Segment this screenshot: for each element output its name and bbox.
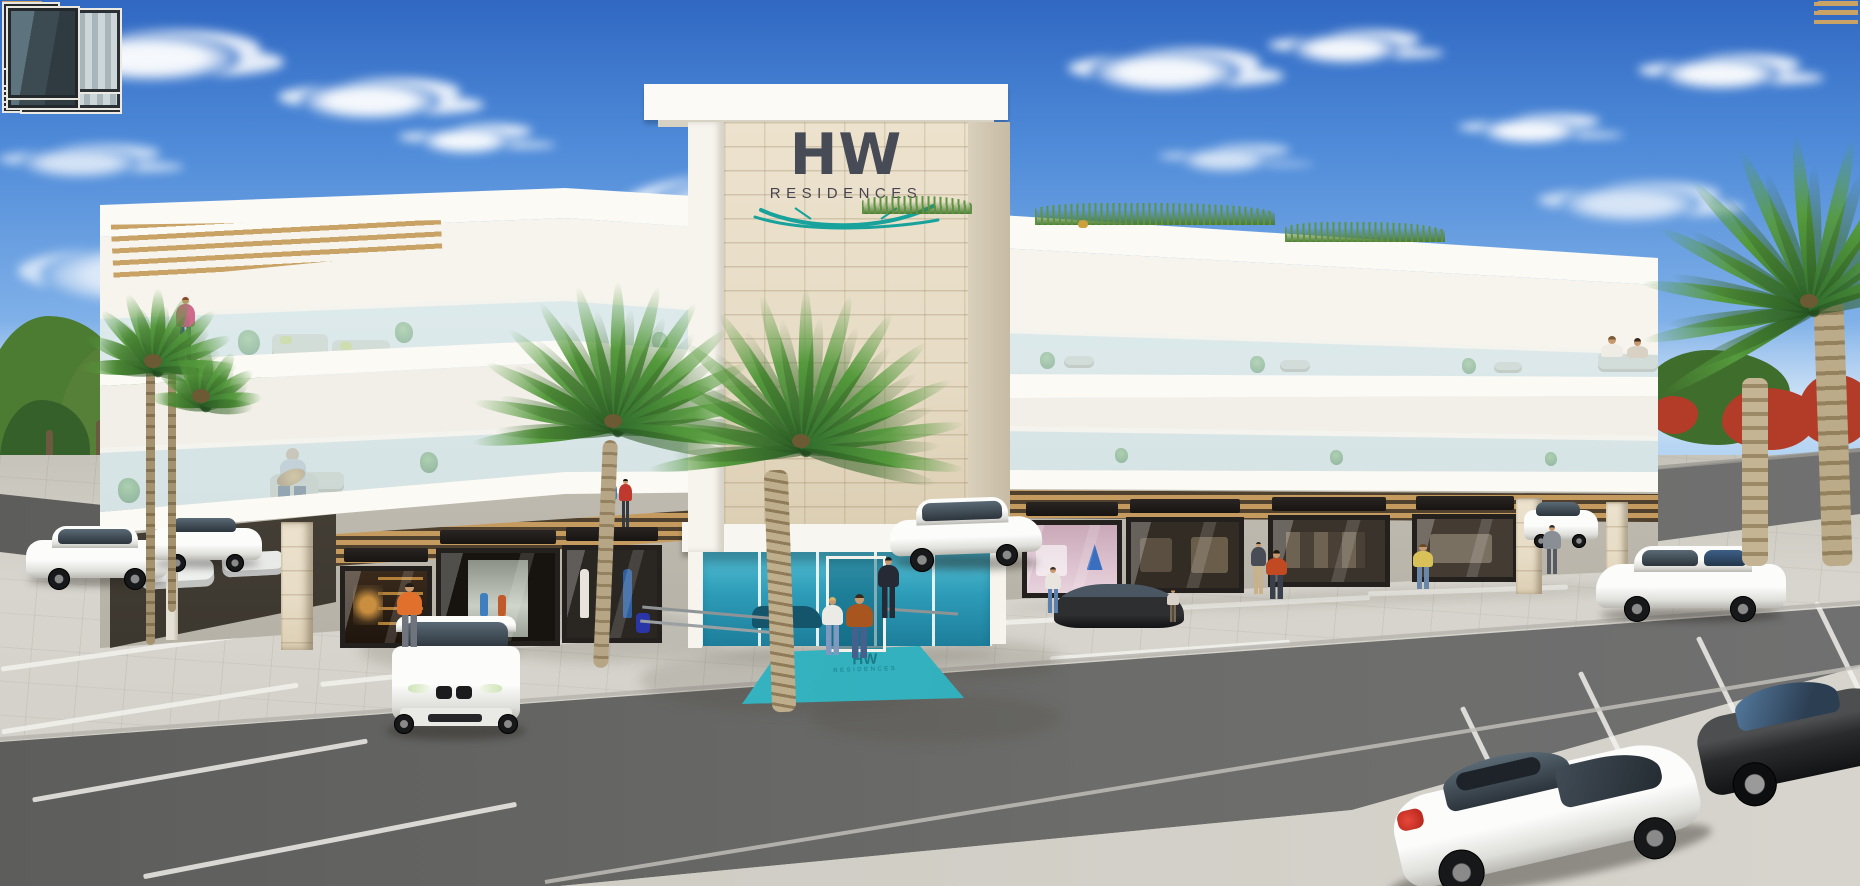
torso xyxy=(1413,551,1433,567)
shop-sign xyxy=(440,530,556,544)
legs xyxy=(826,625,838,655)
rooftop-grass-tuft xyxy=(1285,222,1445,242)
torso xyxy=(822,605,843,626)
legs xyxy=(1254,566,1263,594)
tower-logo: HW RESIDENCES xyxy=(740,130,952,237)
lobby-pier-left xyxy=(688,548,702,648)
torso xyxy=(1543,531,1561,549)
legs xyxy=(882,587,894,619)
person-child xyxy=(1167,589,1179,622)
torso xyxy=(1627,346,1648,358)
person-gray-man-right xyxy=(1543,525,1561,574)
person-couple-man xyxy=(846,594,873,658)
person-balcony-woman-right-2 xyxy=(1627,338,1648,372)
cloud xyxy=(1290,34,1400,64)
palm-left-1-heart xyxy=(144,354,162,368)
shop-sign xyxy=(1416,496,1514,510)
cloud xyxy=(300,82,440,120)
palm-right-heart xyxy=(1800,294,1818,308)
person-shop-woman-right xyxy=(1413,544,1433,589)
shop-sign xyxy=(1130,499,1240,513)
head xyxy=(1273,550,1281,558)
palm-a-heart xyxy=(604,414,622,428)
torso xyxy=(1251,547,1266,566)
torso xyxy=(846,604,873,627)
palm-left-trunk-2 xyxy=(168,372,176,612)
legs xyxy=(622,501,630,527)
cloud xyxy=(1480,118,1580,144)
palm-left-2-heart xyxy=(192,389,210,403)
glass-reflection xyxy=(1131,522,1239,588)
legs xyxy=(1170,605,1177,622)
window xyxy=(8,8,78,98)
head xyxy=(829,597,837,605)
legs xyxy=(852,627,868,658)
head xyxy=(855,594,865,604)
torso xyxy=(1045,573,1061,590)
torso xyxy=(1167,593,1179,605)
torso xyxy=(1266,558,1287,576)
white-car-left-2 xyxy=(150,516,262,570)
cloud xyxy=(20,148,140,178)
cloud xyxy=(1090,52,1240,92)
cloud xyxy=(420,128,512,154)
person-orange-top-woman xyxy=(397,583,422,647)
torso xyxy=(619,484,632,501)
head xyxy=(1608,336,1616,344)
head xyxy=(1419,544,1426,551)
palm-b-heart xyxy=(792,434,810,448)
person-red-jacket-man xyxy=(1266,550,1287,599)
person-balcony-woman-right-1 xyxy=(1601,336,1623,372)
logo-monogram: HW xyxy=(740,130,952,181)
cloud xyxy=(1660,58,1780,90)
rooftop-grass-tuft xyxy=(1035,203,1275,225)
head xyxy=(1634,338,1642,346)
shop-menswear xyxy=(1126,517,1244,593)
person-suit-man xyxy=(878,557,899,618)
white-sedan-center xyxy=(890,496,1042,574)
person-arcade-shopper-2 xyxy=(619,479,632,527)
head xyxy=(405,583,414,592)
palm-left-trunk-1 xyxy=(146,345,155,645)
legs xyxy=(402,615,417,647)
torso xyxy=(397,592,422,615)
stone-column-left xyxy=(281,522,313,650)
roof-bird xyxy=(1078,220,1088,228)
cloud xyxy=(1180,148,1270,172)
head xyxy=(1050,567,1056,573)
tower-shade-right xyxy=(968,122,1010,552)
head xyxy=(885,557,893,565)
person-walking-girl xyxy=(1045,567,1061,613)
legs xyxy=(1417,567,1429,589)
glass-reflection xyxy=(1273,520,1385,582)
person-sidewalk-woman xyxy=(1251,542,1266,594)
palm-shade xyxy=(810,694,1060,742)
tower-cap xyxy=(644,84,1008,120)
cloud xyxy=(1560,186,1700,222)
scene: HW RESIDENCES xyxy=(0,0,1860,886)
legs xyxy=(1547,549,1557,574)
legs xyxy=(1270,575,1282,599)
pergola-slat-box xyxy=(1816,2,1856,24)
shop-sign xyxy=(344,548,428,562)
legs xyxy=(1048,589,1057,613)
torso xyxy=(878,565,899,587)
rooftop-grass-tuft xyxy=(862,196,972,214)
person-couple-woman xyxy=(822,597,843,655)
head xyxy=(623,479,628,484)
palm-right-trunk-1 xyxy=(1742,378,1768,566)
white-car-right-tucked xyxy=(1524,502,1598,548)
torso xyxy=(1601,344,1623,357)
shop-sign xyxy=(1272,497,1386,511)
dark-car-center xyxy=(1054,584,1184,632)
